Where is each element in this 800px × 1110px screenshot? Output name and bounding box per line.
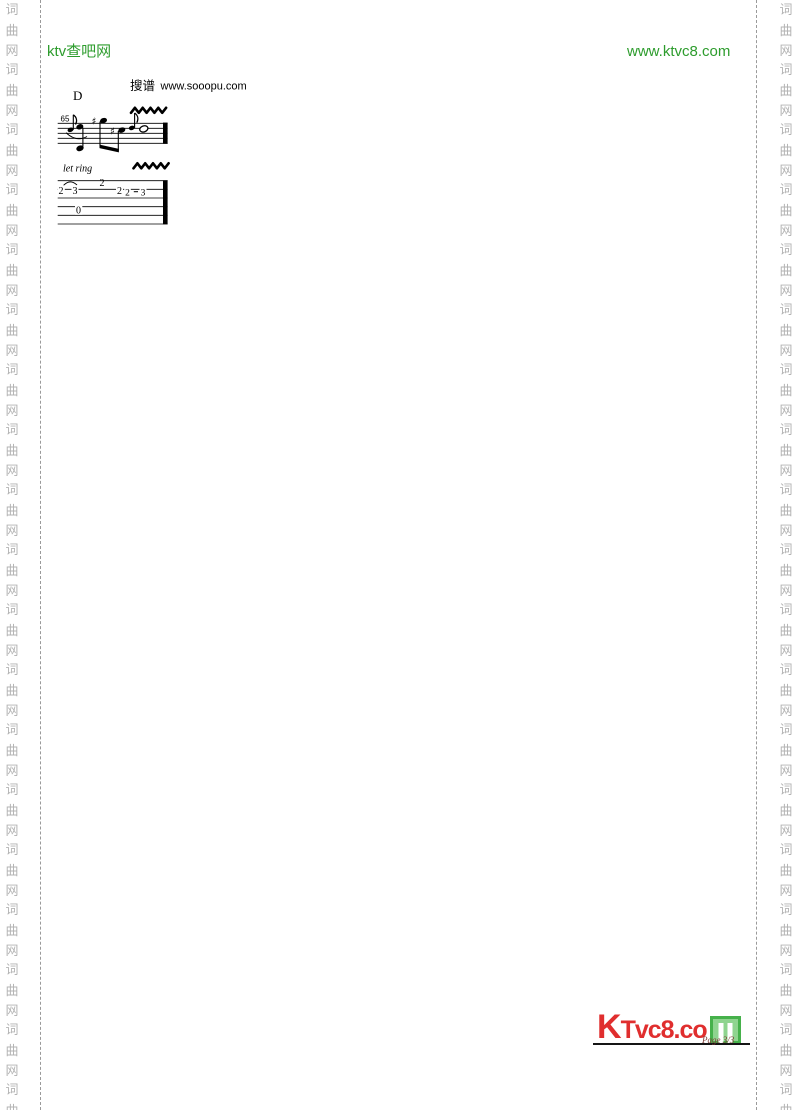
- site-name-link[interactable]: ktv查吧网: [47, 44, 111, 59]
- watermark-group: 词曲网: [774, 122, 798, 182]
- sharp-symbol: ♯: [92, 117, 97, 128]
- watermark-group: 词曲网: [774, 542, 798, 602]
- watermark-group: 词曲网: [774, 1022, 798, 1082]
- tab-fret: 2: [59, 186, 64, 197]
- watermark-group: 词曲网: [0, 242, 24, 302]
- watermark-group: 词曲网: [0, 902, 24, 962]
- footer-logo-text: KTvc8.co: [597, 1013, 707, 1044]
- watermark-group: 词曲网: [0, 122, 24, 182]
- score-search-label: 搜谱: [130, 78, 155, 93]
- watermark-group: 词曲网: [774, 842, 798, 902]
- watermark-group: 词曲网: [0, 1082, 24, 1110]
- sharp-symbol: ♯: [110, 127, 115, 138]
- watermark-group: 词曲网: [774, 962, 798, 1022]
- watermark-group: 词曲网: [0, 542, 24, 602]
- half-notehead: [139, 125, 149, 134]
- watermark-group: 词曲网: [0, 662, 24, 722]
- final-barline: [163, 123, 168, 144]
- watermark-group: 词曲网: [0, 962, 24, 1022]
- watermark-group: 词曲网: [774, 482, 798, 542]
- watermark-group: 词曲网: [0, 602, 24, 662]
- guitar-score-fragment: 搜谱 www.sooopu.com D 65 ♯: [50, 74, 250, 234]
- watermark-group: 词曲网: [0, 782, 24, 842]
- wavy-line-symbol: [134, 163, 169, 168]
- watermark-group: 词曲网: [774, 182, 798, 242]
- watermark-group: 词曲网: [0, 302, 24, 362]
- expression-let-ring: let ring: [63, 163, 92, 174]
- site-url-link[interactable]: www.ktvc8.com: [627, 44, 730, 59]
- tab-fret: 2: [117, 186, 122, 197]
- watermark-group: 词曲网: [774, 422, 798, 482]
- watermark-column-right: 词曲网词曲网词曲网词曲网词曲网词曲网词曲网词曲网词曲网词曲网词曲网词曲网词曲网词…: [774, 0, 798, 1110]
- watermark-group: 词曲网: [774, 362, 798, 422]
- sheet-page: 词曲网词曲网词曲网词曲网词曲网词曲网词曲网词曲网词曲网词曲网词曲网词曲网词曲网词…: [0, 0, 800, 1110]
- tab-fret: 2: [125, 188, 130, 198]
- watermark-group: 词曲网: [0, 722, 24, 782]
- watermark-group: 词曲网: [0, 2, 24, 62]
- wavy-line-symbol: [131, 108, 166, 113]
- measure-number: 65: [61, 115, 70, 124]
- tab-fret: 2: [100, 178, 105, 189]
- beam: [100, 145, 119, 153]
- tab-fret: 3: [73, 186, 78, 197]
- watermark-group: 词曲网: [774, 1082, 798, 1110]
- watermark-group: 词曲网: [774, 2, 798, 62]
- chord-symbol: D: [73, 88, 82, 103]
- watermark-group: 词曲网: [774, 62, 798, 122]
- notes: ♯ ♯: [66, 113, 149, 152]
- watermark-group: 词曲网: [774, 302, 798, 362]
- dashed-rule-left: [40, 0, 41, 1110]
- watermark-column-left: 词曲网词曲网词曲网词曲网词曲网词曲网词曲网词曲网词曲网词曲网词曲网词曲网词曲网词…: [0, 0, 24, 1110]
- watermark-group: 词曲网: [774, 242, 798, 302]
- watermark-group: 词曲网: [0, 62, 24, 122]
- watermark-group: 词曲网: [0, 842, 24, 902]
- watermark-group: 词曲网: [774, 782, 798, 842]
- final-barline: [163, 180, 168, 224]
- watermark-group: 词曲网: [774, 722, 798, 782]
- watermark-group: 词曲网: [0, 1022, 24, 1082]
- tab-fret: 3: [141, 188, 146, 198]
- watermark-group: 词曲网: [774, 902, 798, 962]
- score-source-url[interactable]: www.sooopu.com: [160, 81, 247, 93]
- watermark-group: 词曲网: [0, 482, 24, 542]
- watermark-group: 词曲网: [0, 422, 24, 482]
- tab-numbers: 2 3 2 2 2 3 0: [58, 178, 147, 216]
- watermark-group: 词曲网: [774, 662, 798, 722]
- watermark-group: 词曲网: [774, 602, 798, 662]
- tab-fret: 0: [76, 206, 81, 217]
- watermark-group: 词曲网: [0, 182, 24, 242]
- watermark-group: 词曲网: [0, 362, 24, 422]
- page-number-label: Page 3/3: [702, 1035, 734, 1045]
- footer-logo-reflection: KTvc8.co: [597, 1046, 757, 1084]
- dashed-rule-right: [756, 0, 757, 1110]
